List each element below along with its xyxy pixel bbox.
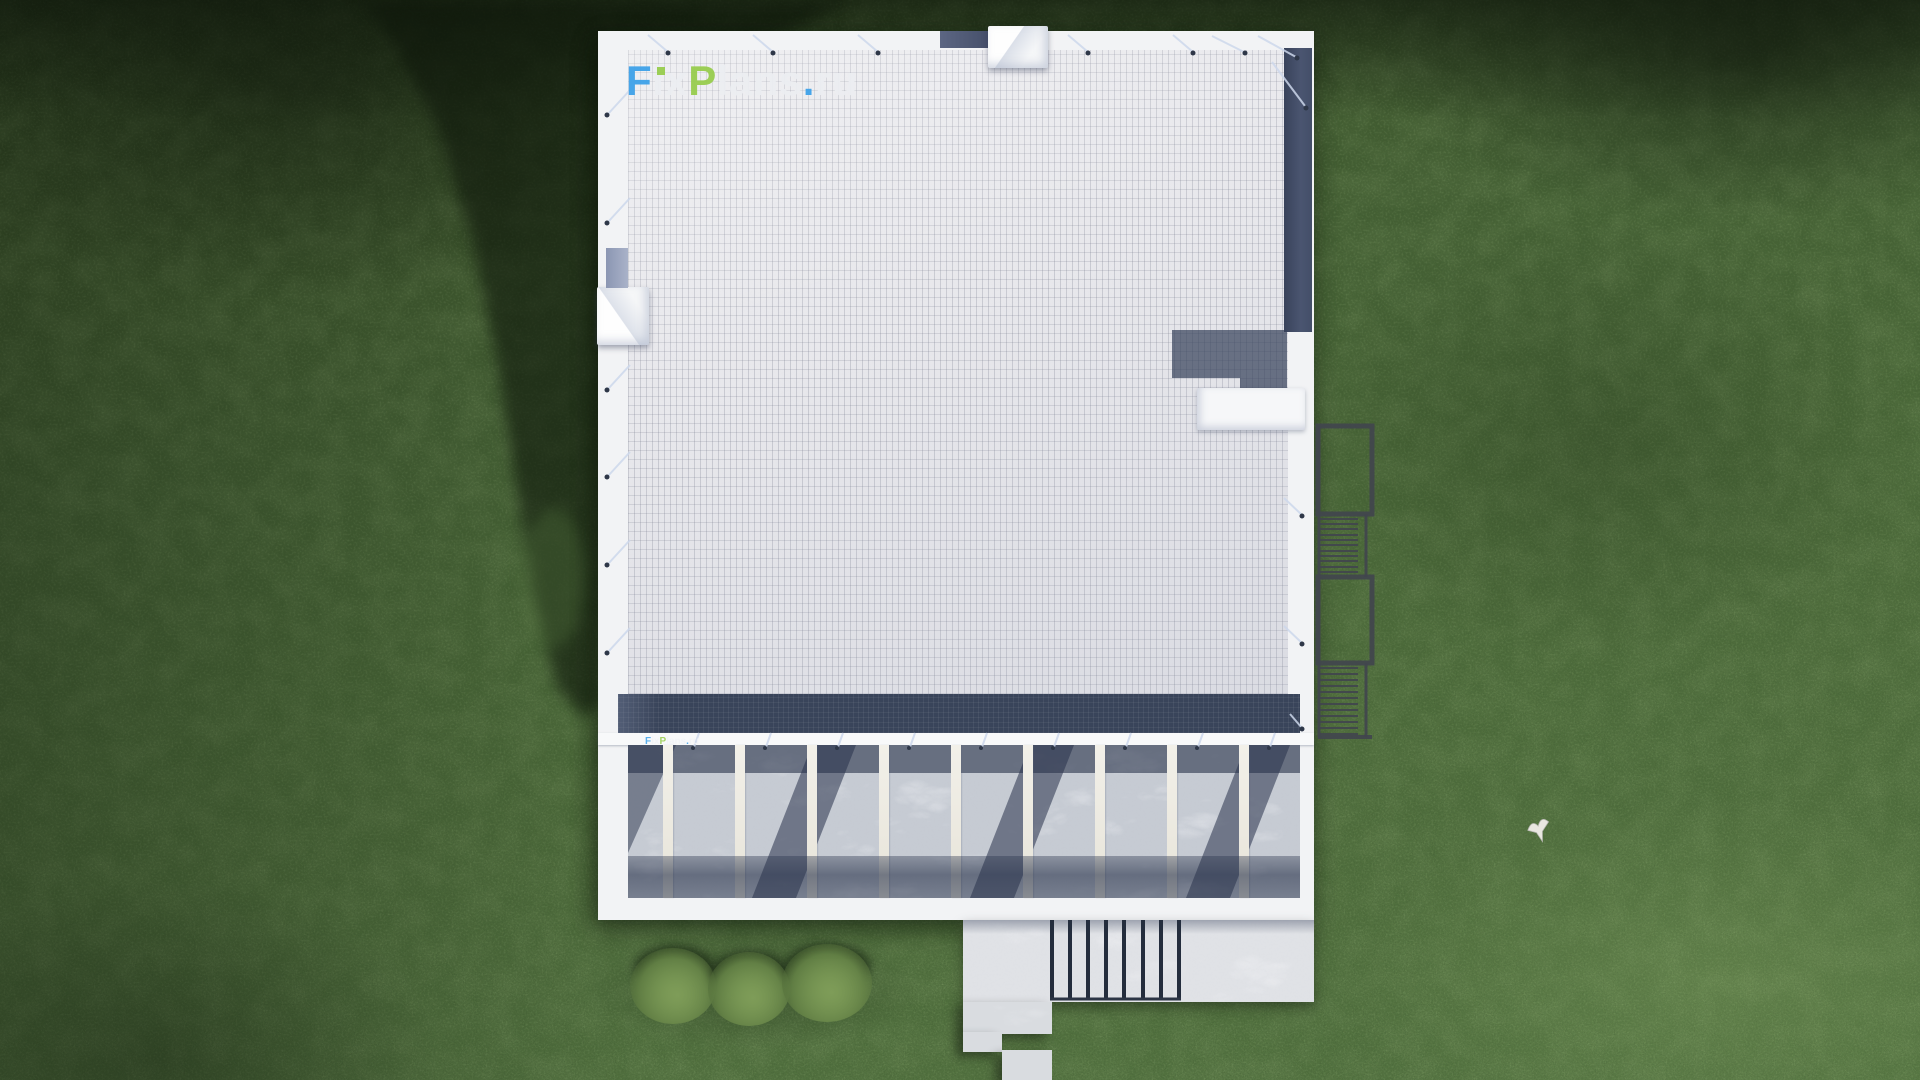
patio-stairs: [1040, 916, 1200, 1006]
terrace-top-beam: [598, 733, 1314, 745]
chimney-top: [988, 26, 1048, 68]
watermark-letters-lans: lans: [717, 57, 803, 104]
roof-right-dark-band: [1284, 48, 1312, 332]
roof-top-dark-segment: [940, 31, 988, 48]
terrace-bottom-shadow-band: [628, 856, 1300, 898]
watermark-letters-ru: ru: [815, 57, 858, 104]
watermark-dot: .: [803, 57, 815, 104]
chimney-left: [597, 287, 649, 345]
watermark-letter-p: P: [688, 57, 717, 104]
watermark-i-dot: [657, 67, 665, 75]
rooftop-access-box: [1197, 388, 1305, 430]
bush: [782, 944, 872, 1022]
walkway-texture: [963, 1002, 1063, 1080]
bush: [630, 948, 716, 1024]
aerial-render-scene: FixPlans.ru FixPlans.ru: [0, 0, 1920, 1080]
left-parapet-slate-segment: [606, 248, 628, 288]
bush: [708, 952, 790, 1026]
exterior-stair-railing: [1308, 418, 1388, 748]
tree-shadow-light-gap: [522, 508, 586, 648]
watermark-small-letters-lans: lans: [666, 736, 686, 747]
watermark-letter-f: F: [626, 57, 652, 104]
roof-bottom-dark-band: [618, 694, 1300, 733]
fixplans-watermark-small: FixPlans.ru: [645, 736, 699, 747]
watermark-letters-ix: ix: [652, 57, 688, 104]
watermark-small-letters-ru: ru: [689, 736, 699, 747]
fixplans-watermark: FixPlans.ru: [626, 58, 858, 104]
